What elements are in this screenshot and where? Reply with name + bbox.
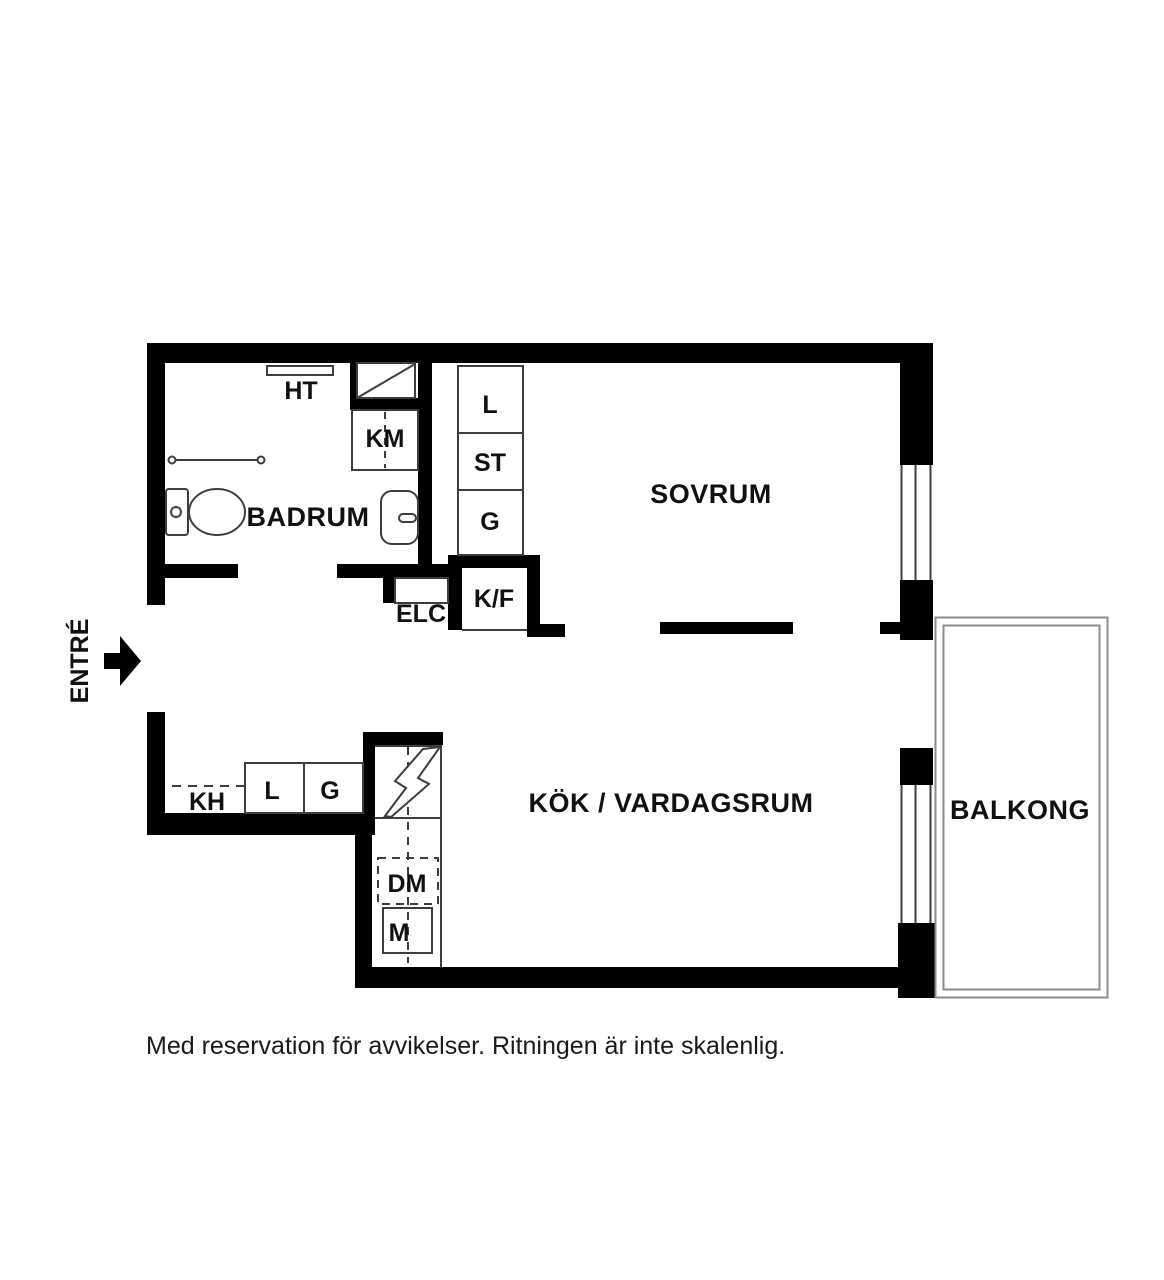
label-l-kitchen: L [264,777,279,805]
wall-cabinet-bottom [350,398,432,410]
wall-elc-stub [383,578,395,603]
wall-kitchen-top [363,732,443,745]
sink-icon [381,491,418,544]
label-g-kitchen: G [320,777,339,805]
wall-bath-right [418,363,432,578]
walls [147,343,935,998]
wall-kf-left [448,555,462,630]
windows [902,465,931,923]
label-kh: KH [189,788,225,816]
wall-right-1 [900,343,933,465]
wall-bath-bottom-left [163,564,238,578]
shelf-icon [267,366,333,375]
wall-divider-stub [880,622,900,634]
window-sovrum [902,465,931,580]
wall-left-upper [147,343,165,605]
label-entre: ENTRÉ [65,619,94,704]
towel-rail-icon [169,457,265,464]
wall-kitchen-left-lower [355,835,372,988]
label-sovrum: SOVRUM [650,479,772,509]
label-kok-vardagsrum: KÖK / VARDAGSRUM [528,788,813,818]
stove-icon [385,747,440,817]
wall-right-2 [900,580,933,640]
label-l-hall: L [482,391,497,419]
fixtures [166,363,527,967]
wall-right-3 [900,748,933,785]
window-vardagsrum [902,785,931,923]
wall-kf-stub [527,624,565,637]
disclaimer-caption: Med reservation för avvikelser. Ritninge… [146,1032,785,1061]
label-ht: HT [284,377,317,405]
wall-kh-bottom [147,813,368,835]
wall-bath-bottom-right [337,564,450,578]
wall-top [147,343,933,363]
label-balkong: BALKONG [950,795,1090,825]
label-badrum: BADRUM [247,502,370,532]
cabinet-icon [357,363,415,398]
label-elc: ELC [396,600,446,628]
floor-plan-page: HT KM BADRUM L ST G K/F ELC SOVRUM KH L … [0,0,1164,1280]
wall-bottom [355,967,935,988]
floor-plan-drawing: HT KM BADRUM L ST G K/F ELC SOVRUM KH L … [0,0,1164,1280]
label-kf: K/F [474,585,514,613]
wall-divider-bar [660,622,793,634]
label-km: KM [366,425,405,453]
entrance-arrow-icon [104,636,141,686]
label-st: ST [474,449,506,477]
toilet-icon [166,489,245,535]
label-g-hall: G [480,508,499,536]
label-dm: DM [388,870,427,898]
label-m: M [389,919,410,947]
kitchen-closets [245,763,363,813]
